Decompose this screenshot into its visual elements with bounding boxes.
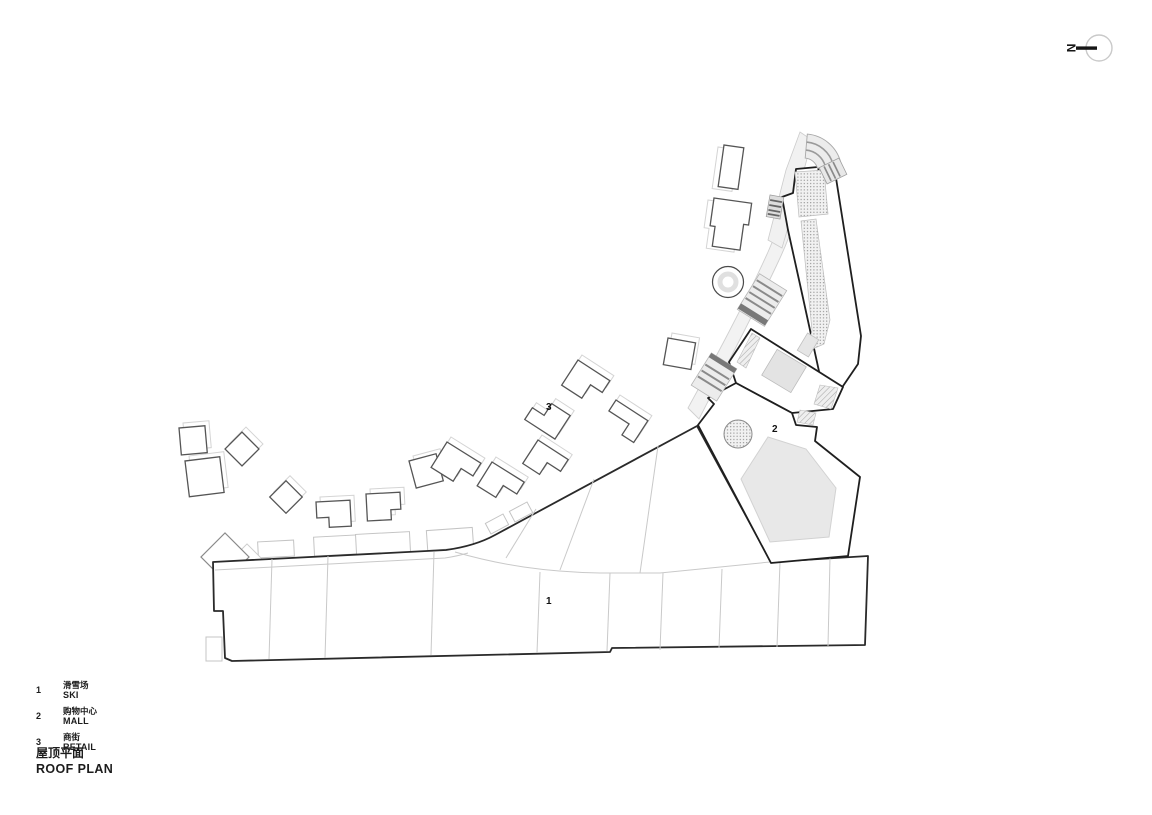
- building-l: [477, 462, 524, 506]
- legend-zh: 商街: [63, 733, 96, 742]
- building-tower-notched: [707, 198, 751, 251]
- round-building: [713, 267, 744, 298]
- north-arrow: N: [1064, 35, 1112, 61]
- building-l: [602, 400, 648, 443]
- north-letter: N: [1064, 44, 1078, 53]
- building-square: [663, 338, 695, 369]
- legend-item-mall: 2 购物中心 MALL: [36, 707, 97, 726]
- hatched-stair: [797, 410, 816, 425]
- legend-num: 2: [36, 707, 63, 721]
- north-bar: [1076, 46, 1097, 49]
- legend-num: 1: [36, 681, 63, 695]
- legend-zh: 购物中心: [63, 707, 97, 716]
- dotted-circle-canopy: [724, 420, 752, 448]
- building-l: [562, 360, 610, 406]
- building-l: [316, 500, 351, 528]
- roof-plan-drawing: 1 2 3 N: [0, 0, 1152, 815]
- legend-item-ski: 1 滑雪场 SKI: [36, 681, 97, 700]
- legend-num: 3: [36, 733, 63, 747]
- building-square: [179, 426, 207, 455]
- building-l: [523, 440, 568, 483]
- legend-zh: 滑雪场: [63, 681, 89, 690]
- label-ski: 1: [546, 596, 552, 607]
- drawing-title: 屋顶平面 ROOF PLAN: [36, 746, 113, 777]
- title-en: ROOF PLAN: [36, 761, 113, 777]
- label-mall: 2: [772, 424, 778, 435]
- legend-en: SKI: [63, 690, 89, 700]
- legend-en: MALL: [63, 716, 97, 726]
- building-l: [366, 492, 401, 521]
- dotted-roof-hatch: [795, 170, 828, 217]
- label-retail: 3: [546, 402, 552, 413]
- title-zh: 屋顶平面: [36, 746, 113, 761]
- building-square: [185, 457, 224, 497]
